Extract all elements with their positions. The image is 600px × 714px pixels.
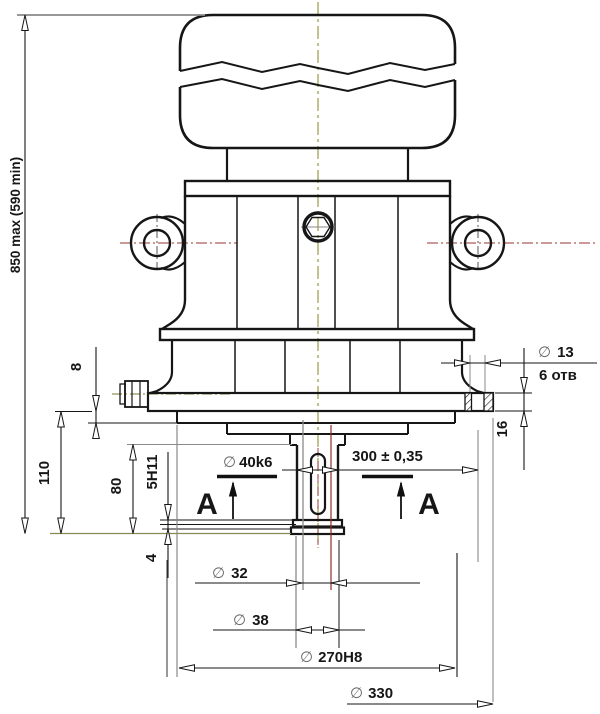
label-16: 16 (494, 421, 511, 438)
dimension-lines (25, 15, 597, 704)
part-outline (120, 15, 504, 534)
flange-rim-section-right (484, 393, 493, 411)
label-110: 110 (36, 461, 53, 485)
label-dia-270H8: ∅270H8 (300, 649, 362, 666)
technical-drawing: 850 max (590 min) 8 110 80 5H11 4 ∅40k6 … (0, 0, 600, 714)
drawing-canvas: 850 max (590 min) 8 110 80 5H11 4 ∅40k6 … (0, 0, 600, 714)
label-section-a-left: A (196, 488, 218, 521)
break-line-upper (180, 62, 455, 74)
middle-plate (160, 329, 474, 340)
base-flange (148, 393, 493, 411)
flange-rim-section-left (465, 393, 472, 411)
label-dia-38: ∅38 (233, 612, 269, 629)
label-300: 300 ± 0,35 (352, 448, 423, 465)
label-hole-diameter: ∅13 (538, 344, 574, 361)
label-dia-330: ∅330 (350, 685, 393, 702)
label-hole-count: 6 отв (539, 367, 577, 384)
label-dia-32: ∅32 (212, 565, 248, 582)
under-flange (150, 340, 484, 393)
label-8: 8 (68, 363, 85, 371)
label-overall-height: 850 max (590 min) (8, 157, 23, 273)
label-shaft-diameter: ∅40k6 (223, 454, 272, 471)
steps (177, 411, 455, 445)
dimension-labels: 850 max (590 min) 8 110 80 5H11 4 ∅40k6 … (8, 157, 577, 702)
label-keyway-5H11: 5H11 (144, 454, 161, 489)
center-bolt (301, 213, 335, 241)
label-4: 4 (143, 553, 160, 562)
label-80: 80 (108, 478, 125, 495)
label-section-a-right: A (418, 488, 440, 521)
right-lug (450, 216, 504, 269)
